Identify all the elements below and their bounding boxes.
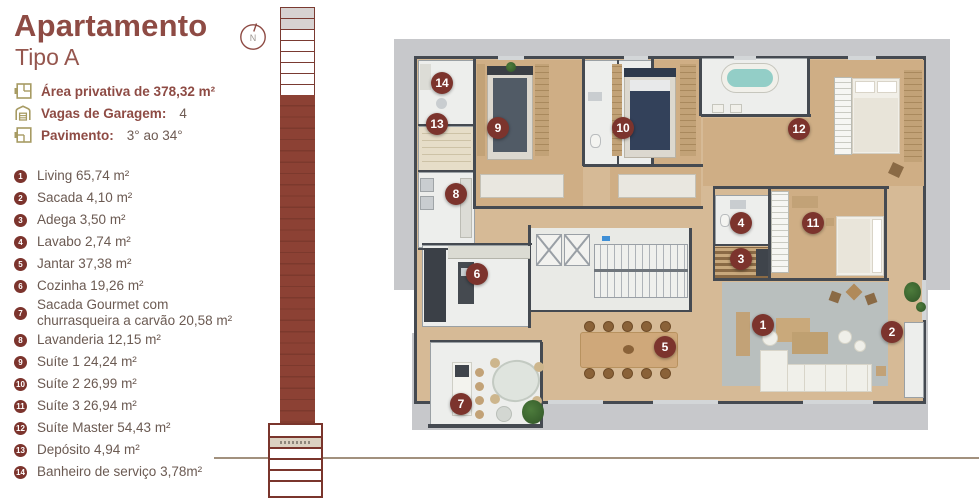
terrace-chair [490, 358, 500, 368]
page-title: Apartamento [14, 8, 207, 44]
legend-number: 14 [14, 466, 27, 479]
sign [602, 236, 610, 241]
floor-plan: 1234567891011121314 [378, 30, 978, 434]
sink [730, 200, 746, 209]
mattress [493, 78, 527, 152]
wall [713, 186, 889, 189]
round-table [496, 406, 512, 422]
wall [583, 164, 703, 167]
plan-marker-1: 1 [752, 314, 774, 336]
legend-text: Adega 3,50 m² [37, 212, 126, 228]
legend-item: 11Suíte 3 26,94 m² [14, 395, 239, 417]
legend-number: 10 [14, 378, 27, 391]
info-value: 4 [179, 106, 187, 121]
dining-chair [603, 368, 614, 379]
base-row [270, 471, 321, 482]
desk [792, 196, 818, 208]
base-label-row [270, 438, 321, 449]
wall [418, 170, 475, 172]
dining-chair [603, 321, 614, 332]
base-row [270, 425, 321, 438]
wall [884, 189, 887, 279]
plan-marker-5: 5 [654, 336, 676, 358]
elevation-floor [280, 63, 315, 74]
wall [768, 189, 771, 279]
window [734, 56, 756, 60]
plan-marker-12: 12 [788, 118, 810, 140]
elevation-tower [280, 95, 315, 423]
info-row-garage: Vagas de Garagem:4 [14, 102, 264, 124]
dining-chair [660, 321, 671, 332]
dining-chair [660, 368, 671, 379]
plant [522, 400, 544, 424]
legend-number: 8 [14, 334, 27, 347]
legend-item: 12Suíte Master 54,43 m² [14, 417, 239, 439]
terrace-chair [490, 394, 500, 404]
legend-item: 3Adega 3,50 m² [14, 209, 239, 231]
legend-number: 11 [14, 400, 27, 413]
stool [475, 368, 484, 377]
legend-text: Suíte Master 54,43 m² [37, 420, 171, 436]
legend-text: Depósito 4,94 m² [37, 442, 140, 458]
legend-text: Cozinha 19,26 m² [37, 278, 144, 294]
unit-info: Área privativa de 378,32 m² Vagas de Gar… [14, 80, 264, 146]
wall [473, 206, 703, 209]
legend-text: Living 65,74 m² [37, 168, 129, 184]
stool [475, 382, 484, 391]
sink [588, 92, 602, 101]
pouf [854, 340, 866, 352]
pouf [838, 330, 852, 344]
legend-text: Sacada 4,10 m² [37, 190, 132, 206]
dresser [480, 174, 564, 198]
stair-rail [594, 269, 688, 272]
plant [916, 302, 926, 312]
floorplan-icon [14, 83, 32, 99]
elevation-floor [280, 52, 315, 63]
legend-item: 10Suíte 2 26,99 m² [14, 373, 239, 395]
wine-cabinet [756, 249, 768, 276]
wall [422, 243, 532, 245]
wall [701, 114, 811, 117]
balcony-bench [904, 322, 924, 398]
page-subtitle: Tipo A [15, 44, 79, 71]
bench [712, 104, 724, 113]
dining-chair [641, 368, 652, 379]
sink [436, 98, 447, 109]
legend-item: 13Depósito 4,94 m² [14, 439, 239, 461]
elevation-upper-floors [280, 7, 315, 96]
legend-number: 1 [14, 170, 27, 183]
legend-number: 5 [14, 258, 27, 271]
legend-text: Lavanderia 12,15 m² [37, 332, 161, 348]
wall [528, 225, 531, 328]
elevator [536, 234, 562, 266]
closet [772, 192, 788, 272]
legend-item: 9Suíte 1 24,24 m² [14, 351, 239, 373]
legend-item: 1Living 65,74 m² [14, 165, 239, 187]
plan-marker-4: 4 [730, 212, 752, 234]
legend-text: Suíte 1 24,24 m² [37, 354, 137, 370]
wall [713, 189, 715, 279]
plan-marker-13: 13 [426, 113, 448, 135]
wardrobe [535, 64, 549, 156]
pillow [877, 81, 897, 93]
base-row [270, 449, 321, 460]
coffee-table [792, 332, 828, 354]
info-row-area: Área privativa de 378,32 m² [14, 80, 264, 102]
wardrobe [904, 70, 922, 162]
legend-item: 8Lavanderia 12,15 m² [14, 329, 239, 351]
legend-number: 12 [14, 422, 27, 435]
dining-chair [584, 368, 595, 379]
credenza [736, 312, 750, 356]
wall [582, 58, 585, 166]
legend-text: Banheiro de serviço 3,78m² [37, 464, 202, 480]
base-row [270, 482, 321, 494]
chaise [760, 350, 788, 392]
nightstand [826, 218, 834, 226]
kitchen-counter [448, 246, 530, 259]
elevation-floor [280, 30, 315, 41]
storage-shelves [422, 130, 471, 168]
wall [713, 278, 889, 281]
compass-icon: N [238, 21, 268, 51]
window [848, 56, 876, 60]
legend-number: 4 [14, 236, 27, 249]
wall [715, 244, 770, 246]
wall [689, 228, 692, 312]
toilet [720, 214, 730, 227]
elevation-floor [280, 74, 315, 85]
dresser [618, 174, 696, 198]
info-label: Área privativa de 378,32 m² [41, 84, 215, 99]
legend-number: 3 [14, 214, 27, 227]
legend-text: Suíte 3 26,94 m² [37, 398, 137, 414]
elevator [564, 234, 590, 266]
wardrobe [477, 64, 485, 156]
plan-marker-9: 9 [487, 117, 509, 139]
legend-text: Jantar 37,38 m² [37, 256, 132, 272]
plan-marker-11: 11 [802, 212, 824, 234]
window [653, 400, 718, 404]
ground-line [214, 457, 979, 459]
window [624, 56, 648, 60]
legend-item: 5Jantar 37,38 m² [14, 253, 239, 275]
window [548, 400, 603, 404]
blanket [838, 219, 870, 273]
garage-icon [14, 105, 32, 121]
window [922, 280, 926, 320]
wardrobe [612, 64, 622, 156]
terrace-chair [534, 362, 544, 372]
brochure-page: Apartamento Tipo A Área privativa de 378… [0, 0, 979, 501]
centerpiece [623, 345, 634, 354]
closet [835, 78, 851, 154]
window [803, 400, 873, 404]
stool [475, 396, 484, 405]
legend-text: Sacada Gourmet com churrasqueira a carvã… [37, 297, 234, 329]
stool [475, 410, 484, 419]
washer [420, 178, 434, 192]
legend-text: Lavabo 2,74 m² [37, 234, 131, 250]
bench [730, 104, 742, 113]
dining-chair [641, 321, 652, 332]
plant [904, 282, 921, 302]
wardrobe [680, 64, 696, 156]
wall [428, 424, 543, 428]
info-label: Vagas de Garagem: [41, 106, 166, 121]
legend-item: 6Cozinha 19,26 m² [14, 275, 239, 297]
plan-marker-8: 8 [445, 183, 467, 205]
bathtub [722, 64, 778, 92]
legend-number: 2 [14, 192, 27, 205]
legend-number: 7 [14, 307, 27, 320]
blanket [854, 98, 898, 152]
plan-marker-7: 7 [450, 393, 472, 415]
legend-item: 4Lavabo 2,74 m² [14, 231, 239, 253]
legend-number: 13 [14, 444, 27, 457]
elevation-floor [280, 41, 315, 52]
headboard [624, 68, 676, 77]
kitchen-cabinets [424, 248, 446, 322]
cooktop [455, 365, 469, 377]
legend-item: 7Sacada Gourmet com churrasqueira a carv… [14, 297, 239, 329]
plan-marker-2: 2 [881, 321, 903, 343]
legend-item: 14Banheiro de serviço 3,78m² [14, 461, 239, 483]
dining-chair [622, 321, 633, 332]
legend-item: 2Sacada 4,10 m² [14, 187, 239, 209]
wall [430, 340, 542, 342]
floors-icon [14, 127, 32, 143]
wall [473, 58, 476, 208]
toilet [590, 134, 601, 148]
legend-number: 6 [14, 280, 27, 293]
wall [699, 58, 702, 116]
info-label: Pavimento: [41, 128, 114, 143]
window [498, 56, 524, 60]
room-legend: 1Living 65,74 m²2Sacada 4,10 m²3Adega 3,… [14, 165, 239, 483]
counter [420, 64, 431, 90]
plan-marker-6: 6 [466, 263, 488, 285]
plan-marker-14: 14 [431, 72, 453, 94]
side-table [876, 366, 886, 376]
elevation-floor [280, 7, 315, 19]
elevation-base [268, 423, 323, 498]
legend-number: 9 [14, 356, 27, 369]
elevation-floor [280, 19, 315, 30]
pillow [872, 219, 882, 273]
compass-letter: N [250, 33, 257, 43]
dryer [420, 196, 434, 210]
info-value: 3° ao 34° [127, 128, 183, 143]
info-row-floors: Pavimento:3° ao 34° [14, 124, 264, 146]
wall [530, 310, 692, 312]
base-row [270, 460, 321, 471]
wall [807, 58, 810, 116]
plan-marker-10: 10 [612, 117, 634, 139]
plan-marker-3: 3 [730, 248, 752, 270]
pillow [855, 81, 875, 93]
pillows [630, 80, 670, 91]
plant [506, 62, 516, 72]
dining-chair [584, 321, 595, 332]
legend-text: Suíte 2 26,99 m² [37, 376, 137, 392]
dining-chair [622, 368, 633, 379]
